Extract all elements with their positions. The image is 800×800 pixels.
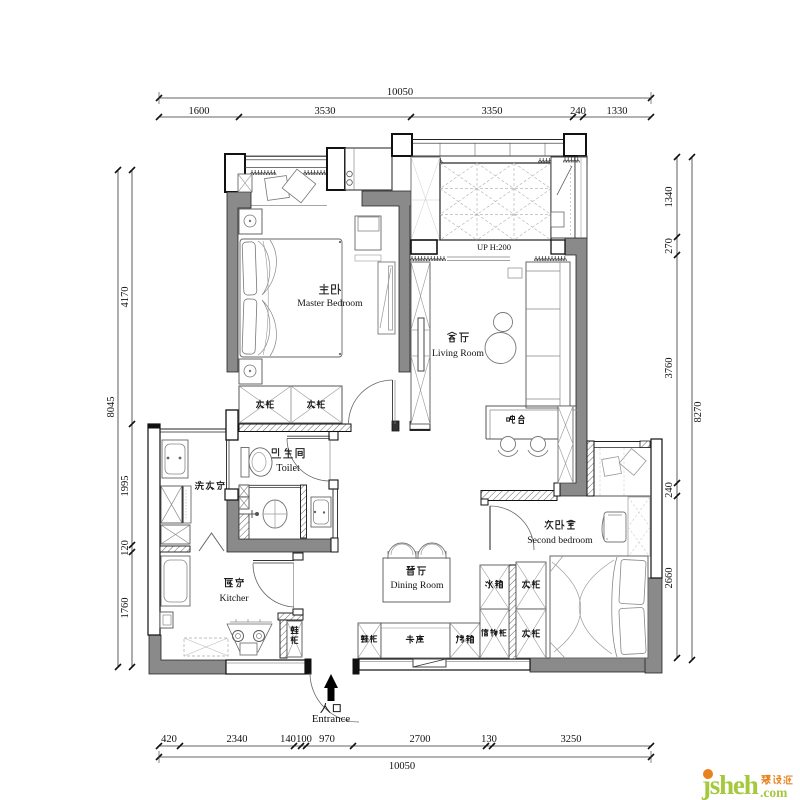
svg-text:130: 130	[481, 734, 497, 745]
svg-text:Kitcher: Kitcher	[219, 593, 249, 604]
svg-text:8045: 8045	[106, 397, 117, 418]
svg-text:Entrance: Entrance	[312, 713, 351, 725]
svg-text:1330: 1330	[607, 106, 628, 117]
svg-text:1995: 1995	[120, 476, 131, 497]
svg-text:3350: 3350	[482, 106, 503, 117]
svg-text:Dining Room: Dining Room	[390, 580, 443, 591]
svg-text:100: 100	[296, 734, 312, 745]
svg-text:1600: 1600	[189, 106, 210, 117]
svg-text:3760: 3760	[664, 358, 675, 379]
svg-text:2340: 2340	[227, 734, 248, 745]
svg-text:1340: 1340	[664, 187, 675, 208]
svg-text:240: 240	[570, 106, 586, 117]
svg-text:8270: 8270	[693, 402, 704, 423]
svg-text:120: 120	[120, 540, 131, 556]
svg-text:Living Room: Living Room	[432, 348, 484, 359]
svg-text:140: 140	[280, 734, 296, 745]
svg-text:970: 970	[319, 734, 335, 745]
svg-text:3250: 3250	[561, 734, 582, 745]
svg-text:2700: 2700	[410, 734, 431, 745]
svg-text:420: 420	[161, 734, 177, 745]
svg-text:Toilet: Toilet	[276, 463, 300, 474]
svg-text:Second bedroom: Second bedroom	[527, 535, 593, 546]
svg-text:UP H:200: UP H:200	[477, 242, 511, 252]
svg-text:4170: 4170	[120, 287, 131, 308]
svg-text:240: 240	[664, 482, 675, 498]
svg-text:10050: 10050	[389, 761, 415, 772]
svg-text:Master Bedroom: Master Bedroom	[297, 298, 363, 309]
svg-text:10050: 10050	[387, 87, 413, 98]
svg-text:3530: 3530	[315, 106, 336, 117]
svg-text:1760: 1760	[120, 598, 131, 619]
svg-text:270: 270	[664, 238, 675, 254]
svg-text:.com: .com	[760, 785, 788, 800]
svg-text:2660: 2660	[664, 568, 675, 589]
